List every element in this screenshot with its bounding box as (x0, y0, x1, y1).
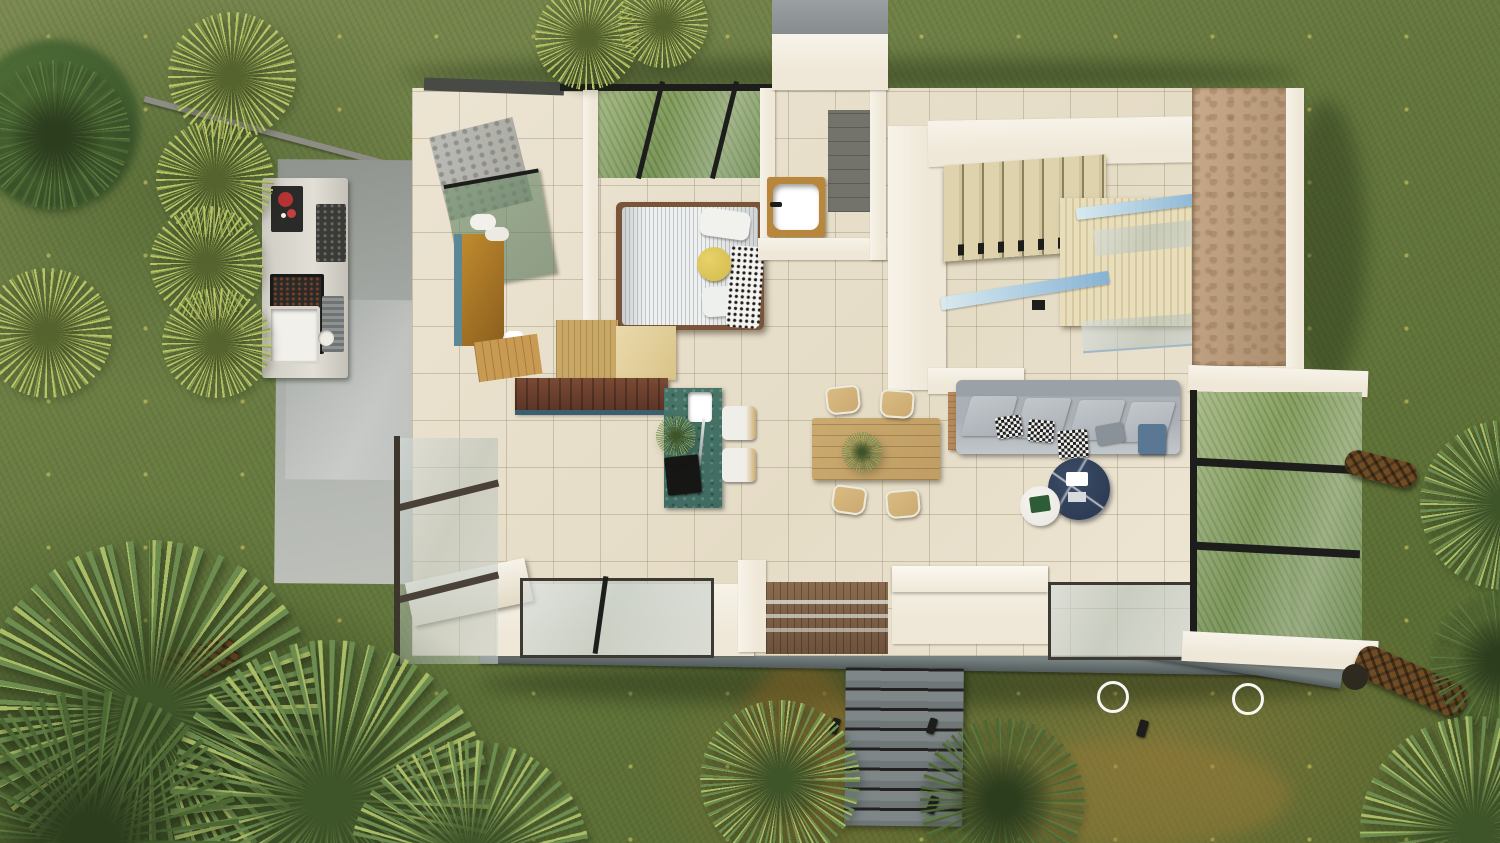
planter-box-top (892, 566, 1048, 592)
grass-bush (168, 12, 296, 140)
glass-floor-skylight-left (520, 578, 714, 658)
kitchen-sink (688, 392, 712, 422)
wall-ensuite-bedroom (583, 90, 598, 332)
outdoor-sink (268, 306, 320, 364)
porch-walls (772, 34, 888, 90)
dining-chair (830, 484, 868, 516)
door-tracks (766, 600, 888, 604)
dining-chair (825, 384, 862, 415)
aerial-render-canvas (0, 0, 1500, 843)
cooktop (664, 454, 702, 495)
entry-deck (766, 582, 888, 654)
houndstooth-pillow (1057, 429, 1089, 459)
rolled-towels (470, 214, 496, 230)
glass-wall-panels (1194, 392, 1362, 644)
table-plant (842, 432, 882, 472)
glass-floor-skylight-right (1048, 582, 1194, 660)
counter-plant (656, 416, 696, 456)
bedroom-glass-wall (595, 84, 771, 178)
stone-feature-wall (1192, 88, 1288, 366)
checkered-pillow (1027, 419, 1055, 443)
bar-stool (722, 448, 756, 482)
palm-trunk-tip (1342, 664, 1368, 690)
gold-wardrobe-door (462, 234, 504, 346)
washbasin (773, 184, 819, 230)
dining-chair (885, 489, 921, 520)
bathroom-right-wall (870, 88, 886, 260)
bar-stool (722, 406, 756, 440)
railing-bracket (1032, 300, 1045, 310)
counter-teal-edge (515, 410, 668, 415)
outdoor-vase (318, 330, 334, 346)
slate-feature-wall (828, 110, 874, 212)
entry-pillar (738, 560, 766, 652)
checkered-pillow (995, 414, 1024, 439)
walnut-bar-counter (515, 378, 668, 412)
shower-teal-strip (454, 234, 462, 346)
hotspot-marker[interactable] (1232, 683, 1264, 715)
dresser-top (616, 326, 676, 380)
flower-pot (278, 192, 293, 207)
hotspot-marker[interactable] (1097, 681, 1129, 713)
porch-roof-slab (772, 0, 888, 34)
green-book (1029, 495, 1051, 514)
basin-faucet (770, 202, 782, 207)
glass-frame-left (1190, 390, 1197, 646)
blue-pillow (1138, 424, 1166, 454)
yellow-round-pillow (697, 247, 731, 281)
pebble-insert (316, 204, 346, 262)
right-exterior-wall (1286, 88, 1304, 380)
dining-chair (879, 389, 915, 419)
dresser-slatted (556, 320, 618, 380)
grass-bush (162, 288, 272, 398)
coffee-table-books (1066, 472, 1088, 486)
